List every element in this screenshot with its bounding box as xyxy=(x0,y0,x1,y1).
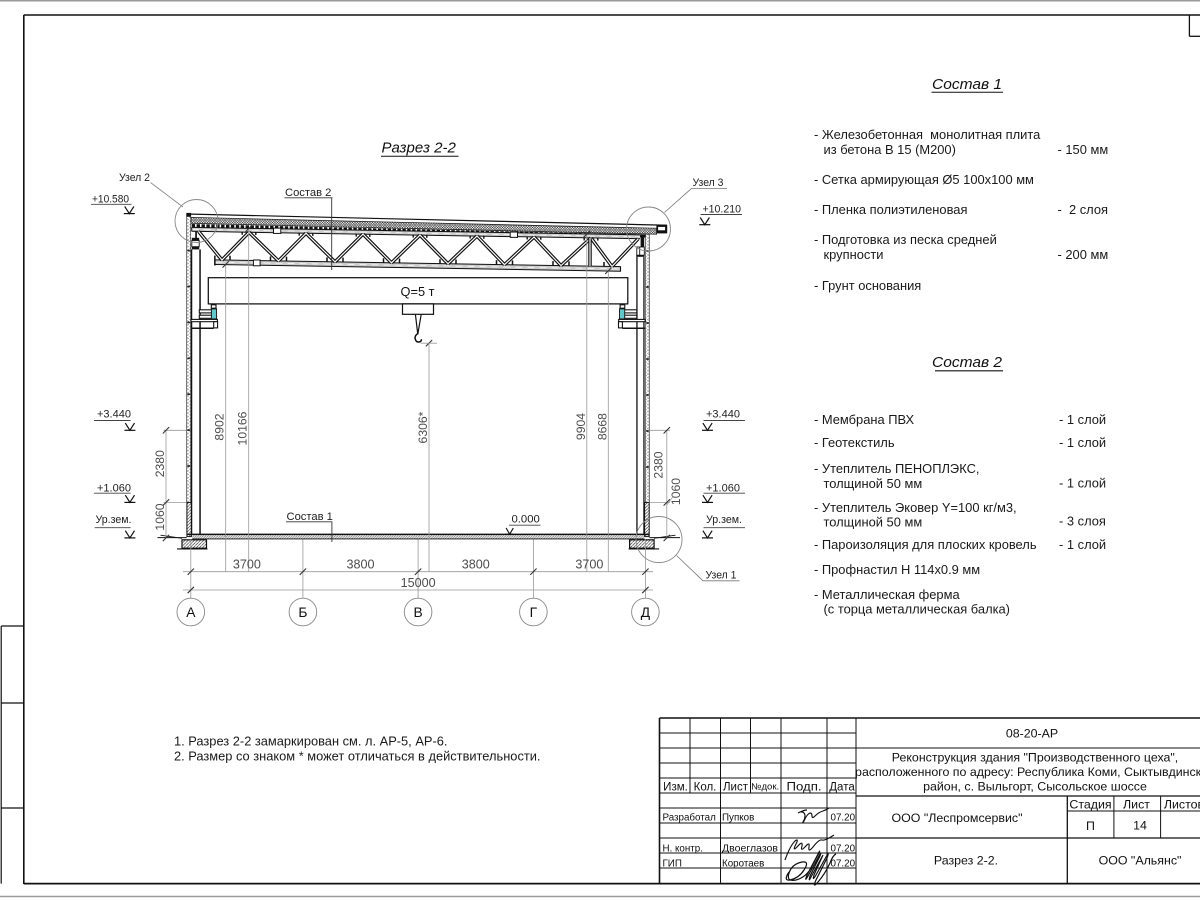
svg-text:(с торца металлическая балка): (с торца металлическая балка) xyxy=(824,602,1010,617)
svg-text:2380: 2380 xyxy=(153,450,167,477)
svg-text:Q=5 т: Q=5 т xyxy=(401,284,435,299)
svg-text:6306*: 6306* xyxy=(416,411,430,443)
svg-text:1060: 1060 xyxy=(669,478,683,505)
svg-text:1060: 1060 xyxy=(153,503,167,530)
svg-text:+1.060: +1.060 xyxy=(97,483,131,495)
svg-text:Ур.зем.: Ур.зем. xyxy=(96,514,132,526)
svg-text:Состав 1: Состав 1 xyxy=(287,511,333,523)
svg-text:№док.: №док. xyxy=(751,782,779,792)
svg-text:В: В xyxy=(413,605,422,620)
svg-text:- 1 слой: - 1 слой xyxy=(1059,412,1106,427)
svg-text:Ур.зем.: Ур.зем. xyxy=(706,514,742,526)
svg-text:15000: 15000 xyxy=(401,576,436,590)
svg-text:+10.210: +10.210 xyxy=(703,204,742,216)
svg-text:Разрез 2-2: Разрез 2-2 xyxy=(382,139,457,156)
svg-text:Узел 3: Узел 3 xyxy=(693,177,724,189)
svg-text:Реконструкция здания "Производ: Реконструкция здания "Производственного … xyxy=(892,750,1178,764)
svg-text:8902: 8902 xyxy=(213,413,227,440)
svg-text:Г: Г xyxy=(530,605,538,620)
svg-text:Состав 1: Состав 1 xyxy=(932,76,1002,93)
svg-text:- 1 слой: - 1 слой xyxy=(1059,537,1106,552)
svg-text:3700: 3700 xyxy=(233,557,261,571)
svg-text:расположенного по адресу: Респ: расположенного по адресу: Республика Ком… xyxy=(855,765,1200,779)
svg-text:10166: 10166 xyxy=(236,411,250,445)
svg-text:2380: 2380 xyxy=(652,451,666,478)
svg-text:3800: 3800 xyxy=(346,557,374,571)
svg-text:- Мембрана ПВХ: - Мембрана ПВХ xyxy=(814,412,915,427)
svg-text:Подп.: Подп. xyxy=(787,781,822,793)
svg-text:район, с. Выльгорт, Сысольское: район, с. Выльгорт, Сысольское шоссе xyxy=(923,780,1147,794)
svg-text:Пупков: Пупков xyxy=(722,813,754,824)
svg-text:+3.440: +3.440 xyxy=(97,409,131,421)
svg-text:из бетона В 15 (М200): из бетона В 15 (М200) xyxy=(824,142,956,157)
svg-text:Кол.: Кол. xyxy=(694,781,717,793)
svg-text:Дата: Дата xyxy=(829,781,855,793)
svg-text:- Утеплитель Эковер Y=100 кг/м: - Утеплитель Эковер Y=100 кг/м3, xyxy=(814,500,1017,515)
svg-text:1. Разрез 2-2 замаркирован см.: 1. Разрез 2-2 замаркирован см. л. АР-5, … xyxy=(174,734,447,749)
svg-text:- 2 слоя: - 2 слоя xyxy=(1058,202,1108,217)
svg-text:07.20: 07.20 xyxy=(831,843,856,854)
svg-text:толщиной 50 мм: толщиной 50 мм xyxy=(824,515,923,530)
svg-text:07.20: 07.20 xyxy=(831,858,856,869)
svg-text:+3.440: +3.440 xyxy=(706,409,740,421)
svg-text:П: П xyxy=(1086,819,1095,833)
svg-text:- Утеплитель ПЕНОПЛЭКС,: - Утеплитель ПЕНОПЛЭКС, xyxy=(814,461,979,476)
svg-text:Б: Б xyxy=(298,605,307,620)
svg-text:3800: 3800 xyxy=(462,557,490,571)
svg-text:Узел 2: Узел 2 xyxy=(119,172,150,184)
svg-text:Листов: Листов xyxy=(1164,797,1200,811)
svg-text:Коротаев: Коротаев xyxy=(722,859,764,870)
svg-text:Состав 2: Состав 2 xyxy=(932,354,1003,371)
svg-text:Лист: Лист xyxy=(1123,797,1150,811)
svg-text:08-20-АР: 08-20-АР xyxy=(1006,727,1058,741)
svg-text:Н. контр.: Н. контр. xyxy=(663,843,703,854)
svg-text:8668: 8668 xyxy=(595,413,609,440)
svg-text:Разрез 2-2.: Разрез 2-2. xyxy=(934,854,998,868)
svg-text:Изм.: Изм. xyxy=(663,781,688,793)
svg-text:- Геотекстиль: - Геотекстиль xyxy=(814,435,895,450)
svg-text:ГИП: ГИП xyxy=(663,858,682,869)
svg-text:+1.060: +1.060 xyxy=(706,483,740,495)
svg-text:Стадия: Стадия xyxy=(1069,797,1111,811)
svg-text:- 150 мм: - 150 мм xyxy=(1058,142,1109,157)
svg-text:Д: Д xyxy=(641,605,651,620)
svg-text:Лист: Лист xyxy=(723,781,749,793)
svg-text:Разработал: Разработал xyxy=(663,812,717,823)
svg-text:- Металлическая ферма: - Металлическая ферма xyxy=(814,587,960,602)
svg-text:14: 14 xyxy=(1133,819,1147,833)
svg-text:крупности: крупности xyxy=(824,247,884,262)
svg-text:2. Размер со знаком * может от: 2. Размер со знаком * может отличаться в… xyxy=(174,749,541,764)
svg-text:Двоеглазов: Двоеглазов xyxy=(722,844,778,855)
svg-text:+10.580: +10.580 xyxy=(92,193,129,205)
svg-text:Узел 1: Узел 1 xyxy=(706,569,737,581)
svg-text:- Подготовка из песка средней: - Подготовка из песка средней xyxy=(814,232,997,247)
svg-text:- Пленка полиэтиленовая: - Пленка полиэтиленовая xyxy=(814,202,967,217)
svg-text:- 200 мм: - 200 мм xyxy=(1058,247,1109,262)
svg-text:07.20: 07.20 xyxy=(831,812,856,823)
svg-text:- Грунт основания: - Грунт основания xyxy=(814,278,921,293)
svg-text:3700: 3700 xyxy=(575,557,603,571)
svg-text:толщиной 50 мм: толщиной 50 мм xyxy=(824,476,923,491)
svg-text:- 1 слой: - 1 слой xyxy=(1059,476,1106,491)
svg-text:- Железобетонная монолитная п: - Железобетонная монолитная плита xyxy=(814,127,1041,142)
svg-text:А: А xyxy=(186,605,196,620)
svg-text:0.000: 0.000 xyxy=(512,513,540,525)
svg-text:ООО "Леспромсервис": ООО "Леспромсервис" xyxy=(891,811,1022,825)
svg-text:- Пароизоляция для плоских кро: - Пароизоляция для плоских кровель xyxy=(814,537,1037,552)
svg-text:9904: 9904 xyxy=(574,413,588,440)
svg-text:ООО "Альянс": ООО "Альянс" xyxy=(1099,854,1182,868)
svg-text:- 1 слой: - 1 слой xyxy=(1059,435,1106,450)
svg-text:Состав 2: Состав 2 xyxy=(285,187,331,199)
svg-text:- 3 слоя: - 3 слоя xyxy=(1059,514,1106,529)
svg-text:- Профнастил Н 114х0.9 мм: - Профнастил Н 114х0.9 мм xyxy=(814,562,980,577)
svg-text:- Сетка армирующая Ø5 100х100: - Сетка армирующая Ø5 100х100 мм xyxy=(814,172,1034,187)
